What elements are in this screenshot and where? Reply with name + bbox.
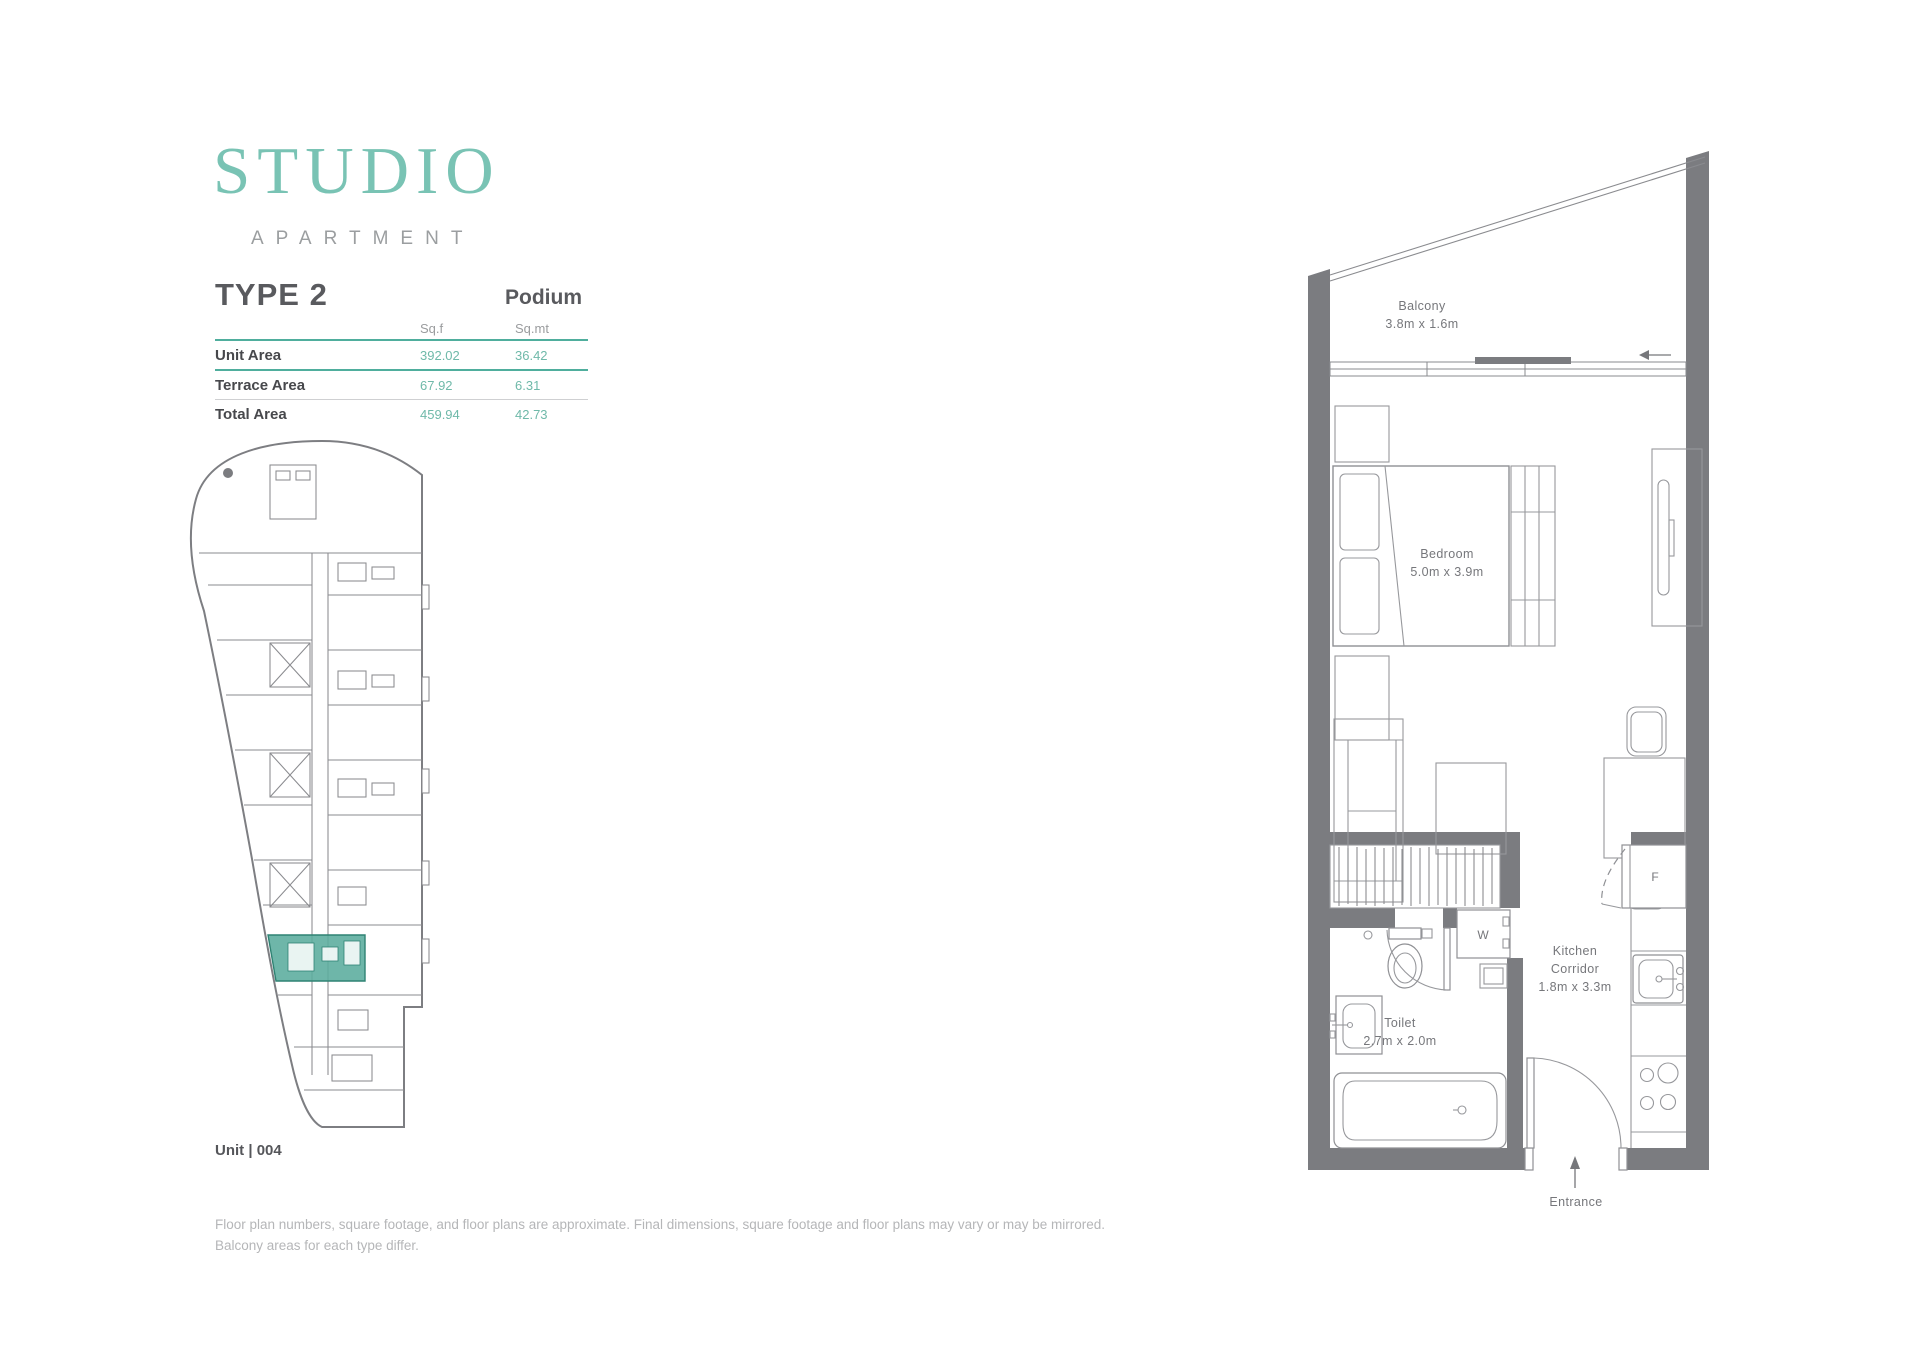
balcony-dims: 3.8m x 1.6m <box>1385 317 1458 331</box>
shelf-niche <box>1480 964 1507 988</box>
hallway-closet <box>1330 845 1500 908</box>
bedroom-dims: 5.0m x 3.9m <box>1410 565 1483 579</box>
disclaimer-line-2: Balcony areas for each type differ. <box>215 1235 1105 1256</box>
unit-number-label: Unit | 004 <box>215 1142 282 1159</box>
bedside-bench-bottom <box>1335 656 1389 740</box>
brand-title: STUDIO <box>213 138 501 205</box>
col-sqmt: Sq.mt <box>515 321 588 336</box>
floor-plan: Balcony 3.8m x 1.6m Bedroom 5.0m x 3.9m … <box>1055 128 1715 1223</box>
unit-type-heading: TYPE 2 <box>215 277 328 313</box>
fridge <box>1602 845 1686 908</box>
slide-direction-arrow-icon <box>1639 350 1671 360</box>
sliding-door-track <box>1330 357 1686 376</box>
table-row: Total Area 459.94 42.73 <box>215 400 588 428</box>
key-plan-partitions <box>199 553 422 1090</box>
level-heading: Podium <box>505 286 582 310</box>
row-label: Unit Area <box>215 347 420 364</box>
key-plan-column-dot <box>223 468 233 478</box>
kitchen-label-line1: Kitchen <box>1553 944 1598 958</box>
brand-subtitle: APARTMENT <box>251 228 474 250</box>
row-label: Terrace Area <box>215 377 420 394</box>
bedside-bench-top <box>1335 406 1389 462</box>
entrance-label: Entrance <box>1549 1195 1602 1209</box>
entrance-arrow-icon <box>1570 1156 1580 1188</box>
toilet-dims: 2.7m x 2.0m <box>1363 1034 1436 1048</box>
wc-toilet <box>1364 928 1432 988</box>
area-table-header: Sq.f Sq.mt <box>215 316 588 341</box>
fridge-label: F <box>1651 870 1658 884</box>
wardrobe <box>1511 466 1555 646</box>
row-sqf-value: 392.02 <box>420 348 515 363</box>
bathtub <box>1334 1073 1506 1148</box>
disclaimer-line-1: Floor plan numbers, square footage, and … <box>215 1214 1105 1235</box>
kitchen-label-line2: Corridor <box>1551 962 1599 976</box>
highlighted-unit-004[interactable] <box>268 935 365 981</box>
cooktop <box>1641 1063 1679 1110</box>
disclaimer: Floor plan numbers, square footage, and … <box>215 1214 1105 1256</box>
table-row: Unit Area 392.02 36.42 <box>215 341 588 371</box>
entrance-door <box>1525 1058 1627 1170</box>
row-sqf-value: 67.92 <box>420 378 515 393</box>
washer-label: W <box>1477 928 1489 942</box>
kitchen-dims: 1.8m x 3.3m <box>1538 980 1611 994</box>
kitchen-sink <box>1633 955 1684 1003</box>
facade-notches <box>422 585 429 963</box>
area-table: Sq.f Sq.mt Unit Area 392.02 36.42 Terrac… <box>215 316 588 428</box>
row-sqmt-value: 36.42 <box>515 348 588 363</box>
toilet-label: Toilet <box>1384 1016 1416 1030</box>
kitchen-counter <box>1631 908 1686 1148</box>
row-label: Total Area <box>215 406 420 423</box>
balcony-label: Balcony <box>1398 299 1446 313</box>
row-sqf-value: 459.94 <box>420 407 515 422</box>
table-row: Terrace Area 67.92 6.31 <box>215 371 588 400</box>
balcony-railing <box>1330 157 1705 281</box>
stair-cores <box>270 643 310 907</box>
row-sqmt-value: 42.73 <box>515 407 588 422</box>
building-outline <box>191 441 422 1127</box>
row-sqmt-value: 6.31 <box>515 378 588 393</box>
col-sqf: Sq.f <box>420 321 515 336</box>
bedroom-label: Bedroom <box>1420 547 1474 561</box>
key-plan <box>172 435 432 1140</box>
